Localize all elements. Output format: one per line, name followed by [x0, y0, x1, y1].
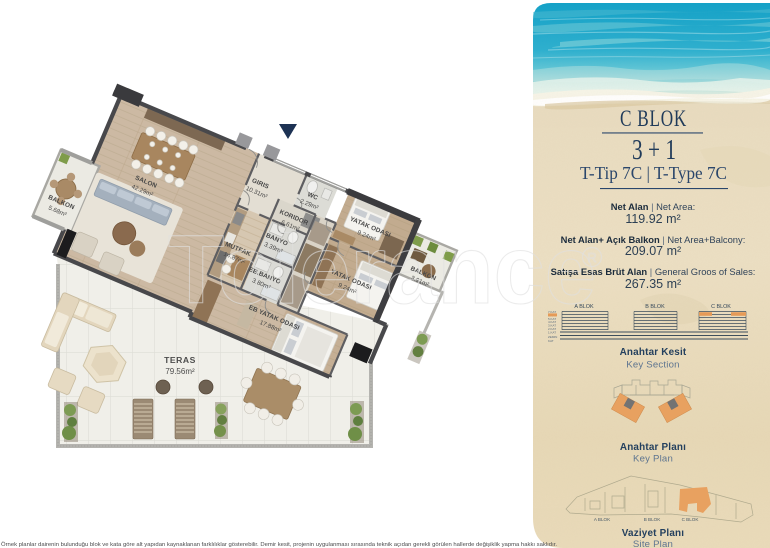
svg-text:A BLOK: A BLOK [594, 517, 611, 522]
svg-text:79.56m²: 79.56m² [165, 367, 195, 376]
svg-text:B BLOK: B BLOK [644, 517, 662, 522]
svg-text:209.07 m²: 209.07 m² [625, 244, 681, 258]
svg-text:B BLOK: B BLOK [645, 304, 665, 310]
svg-text:Key Section: Key Section [626, 360, 679, 371]
svg-text:R: R [587, 250, 596, 265]
svg-text:TERAS: TERAS [164, 355, 196, 365]
svg-text:C BLOK: C BLOK [682, 517, 700, 522]
svg-text:Vaziyet Planı: Vaziyet Planı [622, 528, 684, 539]
svg-text:1.KAT: 1.KAT [548, 330, 556, 334]
svg-text:267.35 m²: 267.35 m² [625, 277, 681, 291]
svg-text:C BLOK: C BLOK [620, 106, 687, 131]
svg-text:Tolerance: Tolerance [168, 215, 596, 324]
svg-text:119.92 m²: 119.92 m² [625, 212, 680, 226]
svg-text:Örnek planlar dairenin bulundu: Örnek planlar dairenin bulunduğu blok ve… [1, 541, 557, 548]
svg-text:Net Alan | Net Area:: Net Alan | Net Area: [611, 201, 695, 212]
svg-text:Anahtar Planı: Anahtar Planı [620, 442, 686, 453]
svg-text:3 + 1: 3 + 1 [632, 135, 676, 166]
svg-text:Site Plan: Site Plan [633, 539, 673, 548]
svg-text:Anahtar Kesit: Anahtar Kesit [620, 347, 687, 358]
svg-text:C BLOK: C BLOK [711, 304, 731, 310]
svg-text:Key Plan: Key Plan [633, 454, 673, 465]
svg-text:KAT: KAT [548, 339, 554, 343]
svg-text:T-Tip 7C | T-Type 7C: T-Tip 7C | T-Type 7C [580, 163, 727, 183]
